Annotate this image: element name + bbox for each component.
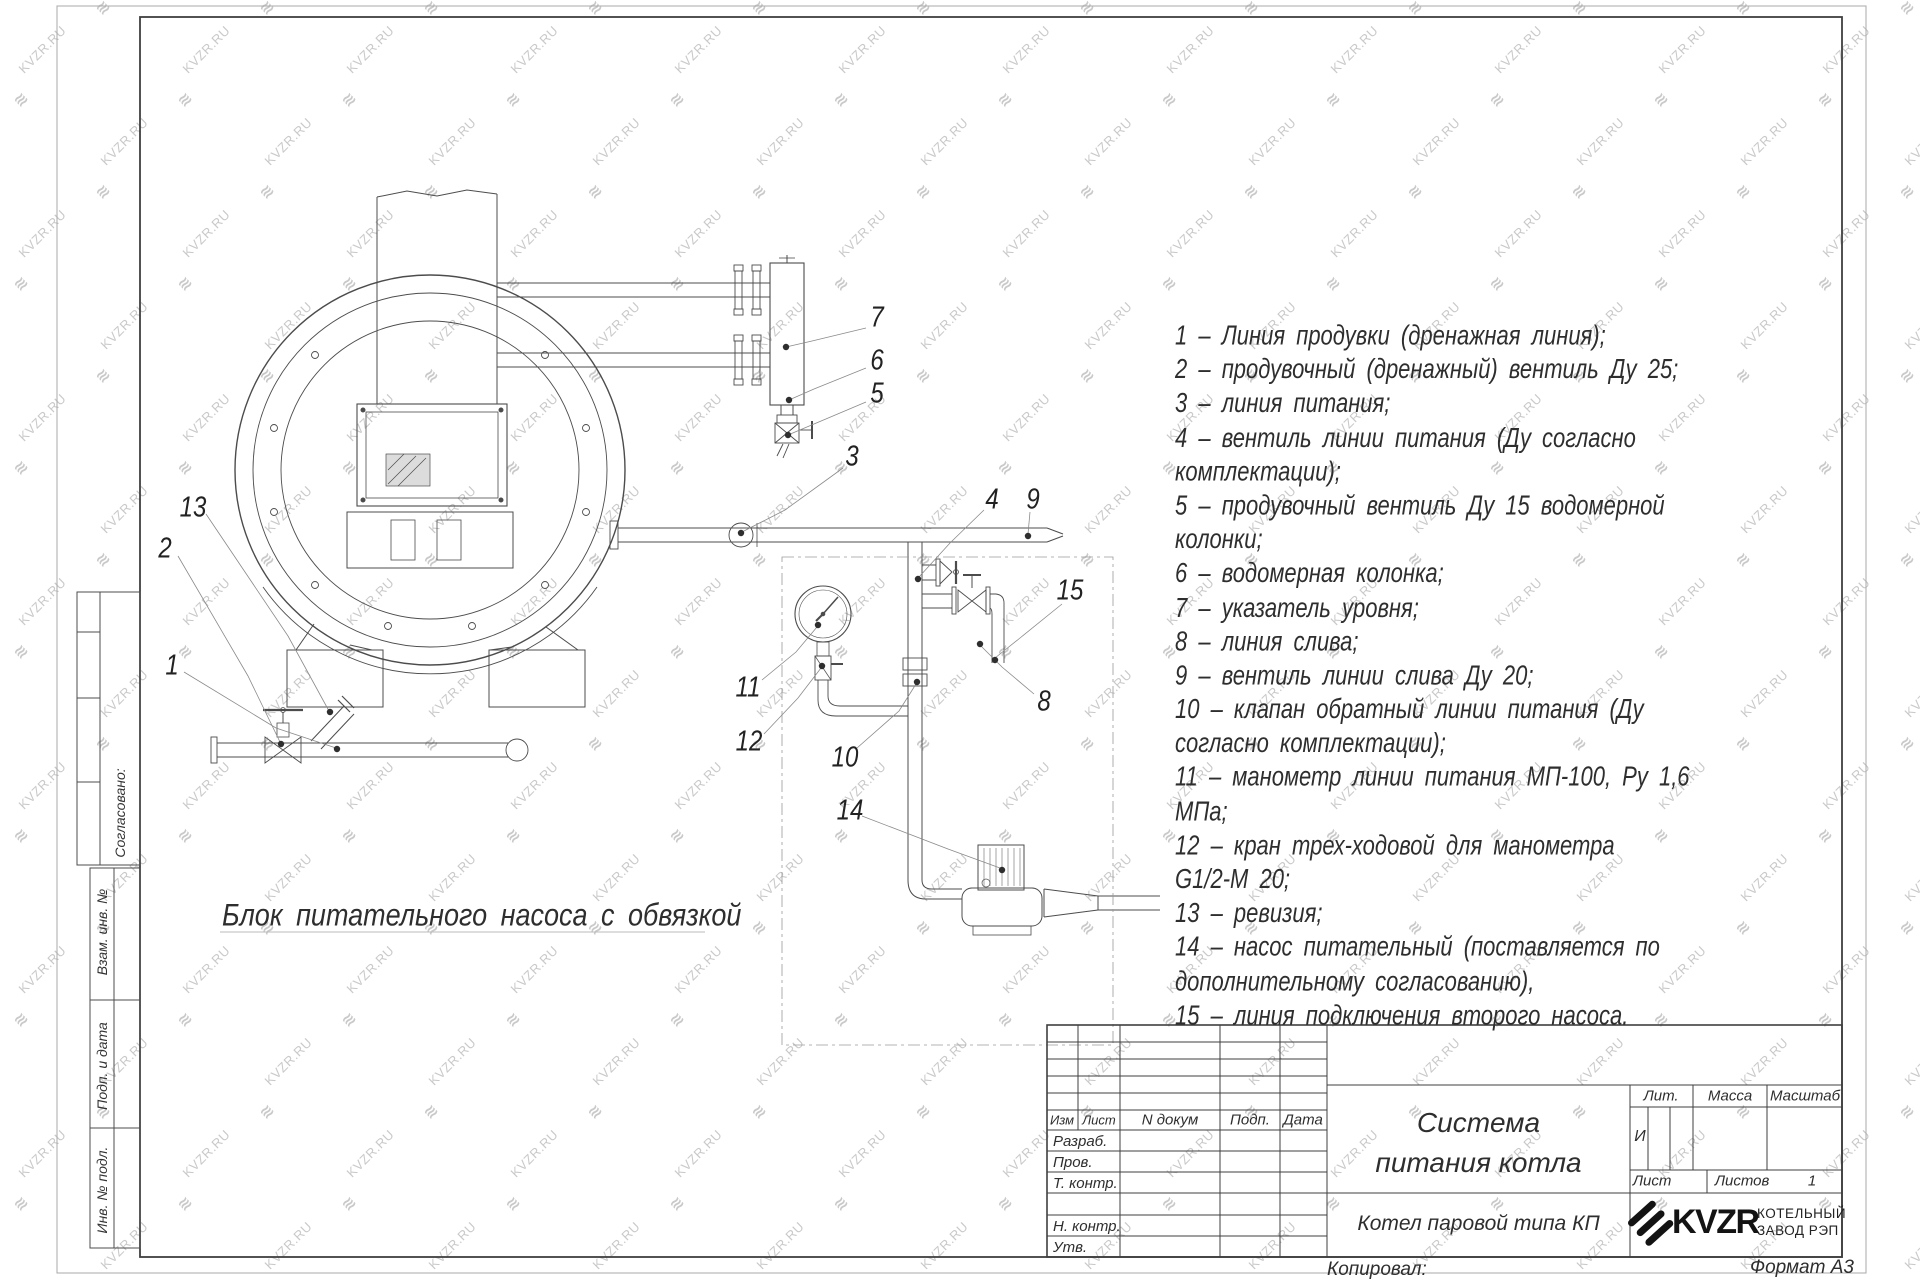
legend-line: комплектации); [1175, 454, 1655, 488]
tb-sheet-label: Лист [1633, 1173, 1672, 1190]
drawing-sheet: KVZR.RU≋KVZR.RU≋KVZR.RU≋KVZR.RU≋KVZR.RU≋… [0, 0, 1920, 1280]
legend-line: согласно комплектации); [1175, 726, 1655, 760]
tb-scale-label: Масштаб [1770, 1088, 1840, 1105]
tb-row-checked: Пров. [1053, 1154, 1093, 1171]
legend-line: 4 – вентиль линии питания (Ду согласно [1175, 420, 1655, 454]
tb-col-sign: Подп. [1230, 1112, 1270, 1129]
doc-title-line1: Система [1327, 1108, 1630, 1138]
legend-line: 9 – вентиль линии слива Ду 20; [1175, 658, 1655, 692]
legend-line: 12 – кран трех-ходовой для манометра [1175, 828, 1655, 862]
legend-list: 1 – Линия продувки (дренажная линия);2 –… [1175, 318, 1655, 1032]
callout-11: 11 [736, 671, 761, 705]
stamp-inv-orig-label: Инв. № подл. [94, 1147, 110, 1234]
tb-row-tcontrol: Т. контр. [1053, 1175, 1118, 1192]
legend-line: 13 – ревизия; [1175, 896, 1655, 930]
legend-line: 14 – насос питательный (поставляется по [1175, 930, 1655, 964]
callout-12: 12 [736, 725, 763, 759]
tb-col-izm: Изм [1050, 1113, 1074, 1128]
doc-subtitle: Котел паровой типа КП [1327, 1212, 1630, 1236]
legend-line: G1/2-М 20; [1175, 862, 1655, 896]
tb-mass-label: Масса [1708, 1088, 1752, 1105]
callout-6: 6 [870, 344, 883, 378]
company-name-line1: КОТЕЛЬНЫЙ [1757, 1206, 1846, 1221]
legend-line: 10 – клапан обратный линии питания (Ду [1175, 692, 1655, 726]
tb-sheets-label: Листов [1715, 1173, 1770, 1190]
callout-10: 10 [832, 741, 859, 775]
format-label: Формат А3 [1750, 1257, 1854, 1279]
doc-title-line2: питания котла [1327, 1148, 1630, 1178]
company-logo-text: KVZR [1672, 1203, 1759, 1242]
legend-line: 8 – линия слива; [1175, 624, 1655, 658]
tb-col-list: Лист [1082, 1113, 1115, 1128]
company-name-line2: ЗАВОД РЭП [1757, 1223, 1839, 1238]
callout-13: 13 [180, 491, 207, 525]
legend-line: дополнительному согласованию), [1175, 964, 1655, 998]
legend-line: 11 – манометр линии питания МП-100, Ру 1… [1175, 760, 1655, 794]
tb-lit-value: И [1634, 1128, 1645, 1146]
tb-col-date: Дата [1283, 1112, 1323, 1129]
tb-col-doc: N докум [1142, 1112, 1199, 1129]
legend-line: 3 – линия питания; [1175, 386, 1655, 420]
legend-line: 7 – указатель уровня; [1175, 590, 1655, 624]
callout-1: 1 [165, 649, 178, 683]
callout-14: 14 [837, 794, 864, 828]
callout-3: 3 [845, 440, 858, 474]
tb-lit-label: Лит. [1643, 1088, 1678, 1105]
legend-line: 5 – продувочный вентиль Ду 15 водомерной [1175, 488, 1655, 522]
drawing-caption: Блок питательного насоса с обвязкой [222, 898, 741, 934]
callout-5: 5 [870, 377, 883, 411]
copied-label: Копировал: [1327, 1259, 1427, 1280]
stamp-replace-inv-label: Взам. инв. № [94, 889, 110, 976]
legend-line: 15 – линия подключения второго насоса. [1175, 998, 1655, 1032]
legend-line: МПа; [1175, 794, 1655, 828]
callout-15: 15 [1057, 574, 1084, 608]
tb-row-developed: Разраб. [1053, 1133, 1107, 1150]
legend-line: 1 – Линия продувки (дренажная линия); [1175, 318, 1655, 352]
callout-7: 7 [870, 301, 883, 335]
callout-4: 4 [985, 483, 998, 517]
tb-sheets-value: 1 [1808, 1173, 1816, 1190]
legend-line: колонки; [1175, 522, 1655, 556]
tb-row-approved: Утв. [1053, 1239, 1087, 1256]
callout-9: 9 [1026, 483, 1039, 517]
tb-row-ncontrol: Н. контр. [1053, 1218, 1121, 1235]
stamp-agreed-label: Согласовано: [112, 768, 128, 857]
legend-line: 2 – продувочный (дренажный) вентиль Ду 2… [1175, 352, 1655, 386]
stamp-sign-date-label: Подп. и дата [94, 1022, 110, 1110]
callout-8: 8 [1037, 685, 1050, 719]
legend-line: 6 – водомерная колонка; [1175, 556, 1655, 590]
callout-2: 2 [158, 532, 171, 566]
